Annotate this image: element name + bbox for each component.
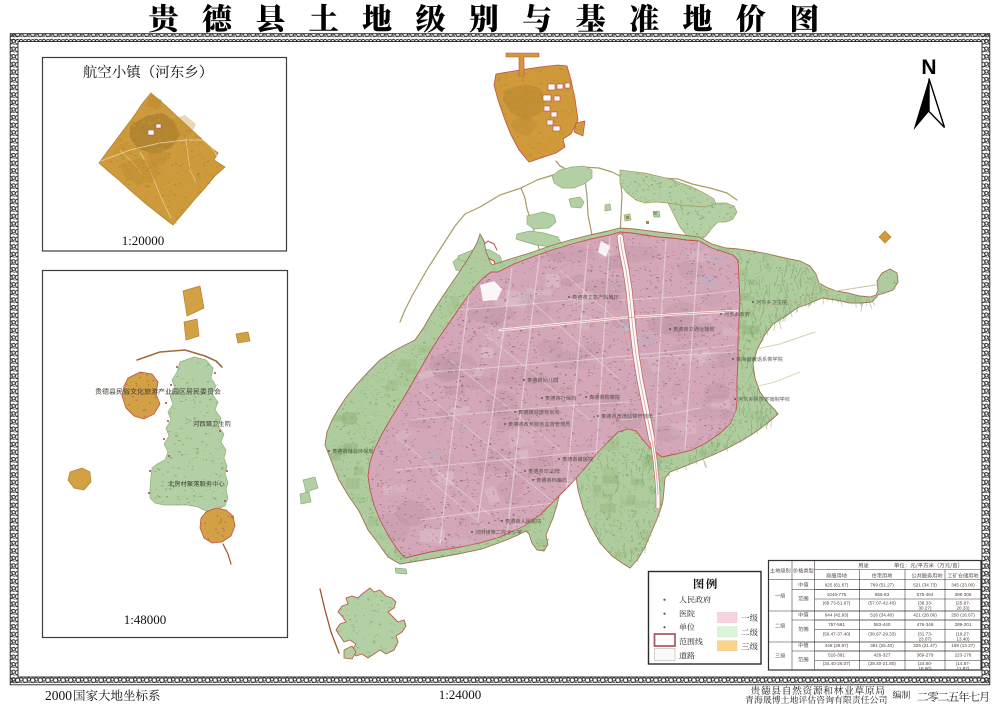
svg-text:(50.47-37.40): (50.47-37.40): [823, 632, 851, 637]
svg-text:1:20000: 1:20000: [122, 233, 165, 248]
svg-text:388-305: 388-305: [955, 592, 972, 597]
svg-text:20.33): 20.33): [956, 605, 969, 610]
svg-text:381 (25.40): 381 (25.40): [870, 643, 894, 648]
svg-text:757-561: 757-561: [828, 622, 845, 627]
svg-text:30.27): 30.27): [918, 605, 931, 610]
svg-text:18.60): 18.60): [918, 666, 931, 671]
svg-text:(34.40-26.07): (34.40-26.07): [823, 661, 851, 666]
svg-text:289-201: 289-201: [955, 622, 972, 627]
svg-text:(38.67-29.33): (38.67-29.33): [868, 632, 896, 637]
svg-text:13.40): 13.40): [956, 636, 969, 641]
svg-text:23.07): 23.07): [918, 636, 931, 641]
svg-text:476-346: 476-346: [917, 622, 934, 627]
svg-text:250 (16.67): 250 (16.67): [951, 613, 975, 618]
svg-text:N: N: [921, 56, 936, 79]
svg-text:1:48000: 1:48000: [124, 612, 167, 627]
svg-text:856-63: 856-63: [875, 592, 890, 597]
svg-text:345 (23.00): 345 (23.00): [951, 583, 975, 588]
svg-text:223-178: 223-178: [955, 653, 972, 658]
svg-text:1:24000: 1:24000: [439, 687, 482, 702]
svg-text:2000: 2000: [45, 688, 72, 703]
svg-text:644 (42.93): 644 (42.93): [825, 613, 849, 618]
svg-text:(28.40-21.80): (28.40-21.80): [868, 661, 896, 666]
svg-text:448 (29.87): 448 (29.87): [825, 643, 849, 648]
svg-text:521 (34.73): 521 (34.73): [913, 583, 937, 588]
svg-text:1046-775: 1046-775: [827, 592, 847, 597]
svg-text:325 (21.47): 325 (21.47): [913, 643, 937, 648]
svg-text:583-440: 583-440: [874, 622, 891, 627]
svg-text:769 (51.27): 769 (51.27): [870, 583, 894, 588]
svg-text:575-454: 575-454: [917, 592, 934, 597]
svg-text:(69.73-51.67): (69.73-51.67): [823, 601, 851, 606]
svg-text:(57.07-42.40): (57.07-42.40): [868, 601, 896, 606]
svg-text:199 (13.27): 199 (13.27): [951, 643, 975, 648]
svg-text:369-279: 369-279: [917, 653, 934, 658]
svg-text:11.87): 11.87): [957, 666, 970, 671]
svg-text:516-391: 516-391: [828, 653, 845, 658]
svg-text:426-327: 426-327: [874, 653, 891, 658]
svg-text:421 (28.06): 421 (28.06): [913, 613, 937, 618]
svg-text:516 (34.40): 516 (34.40): [870, 613, 894, 618]
svg-text:925 (61.67): 925 (61.67): [825, 583, 849, 588]
